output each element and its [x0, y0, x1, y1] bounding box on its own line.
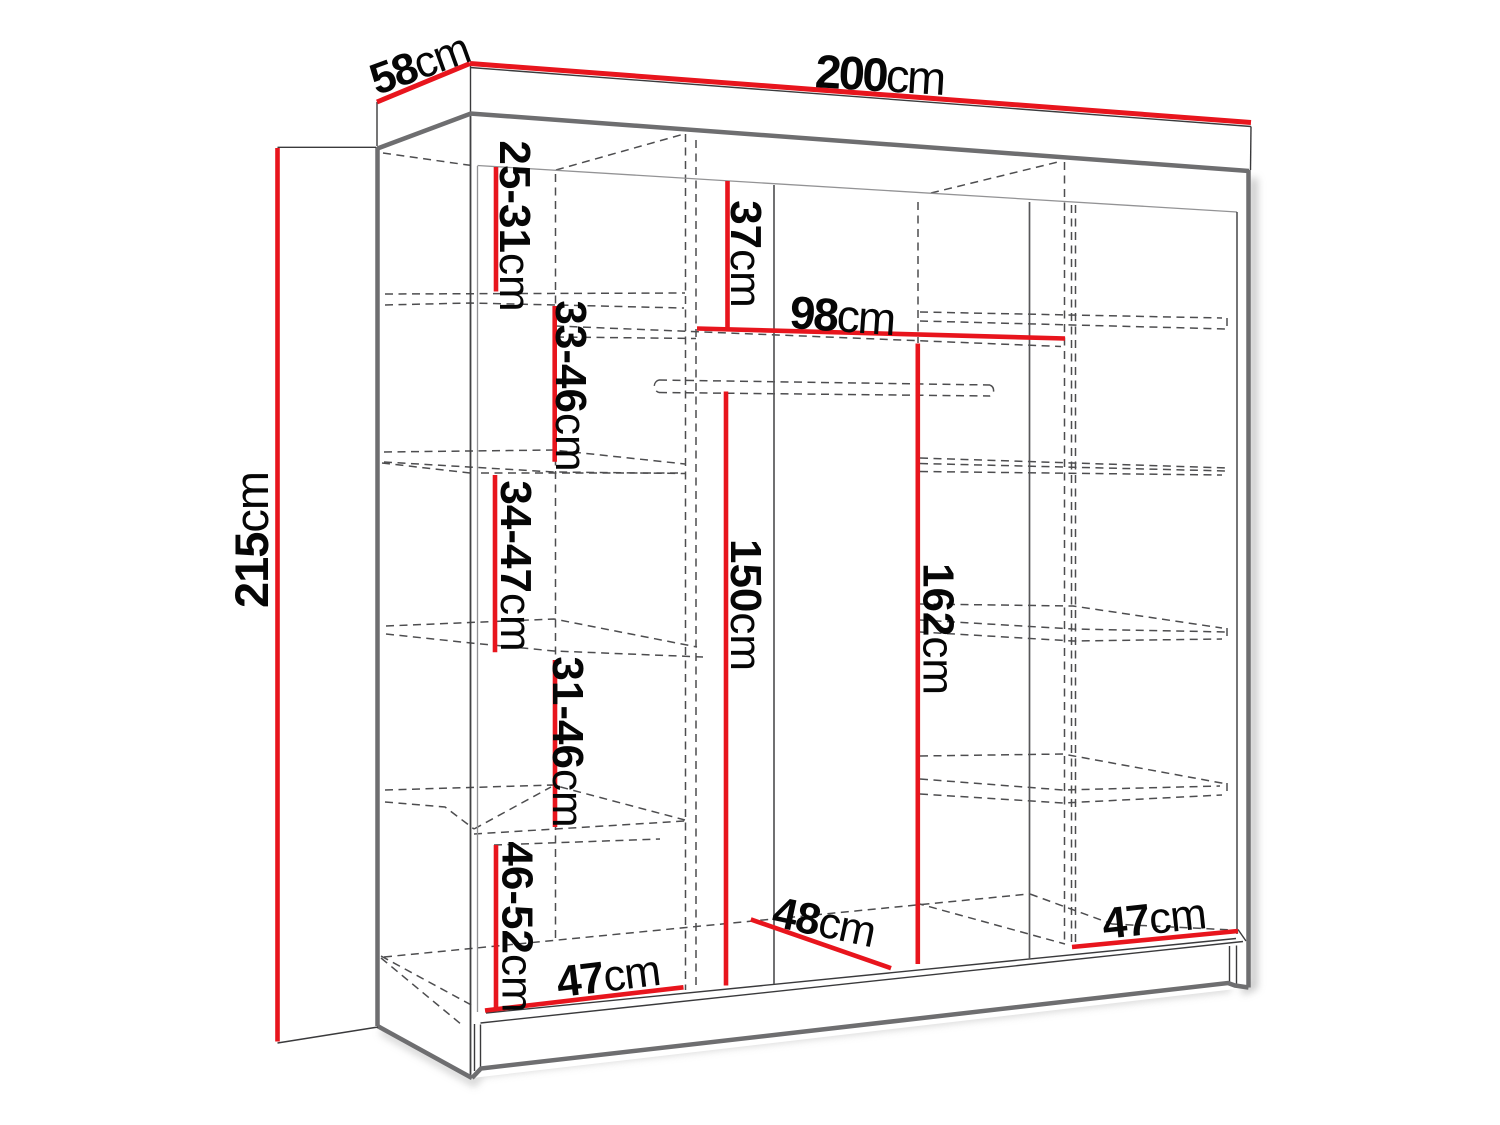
svg-text:98cm: 98cm	[788, 286, 896, 345]
svg-text:150cm: 150cm	[721, 539, 770, 671]
svg-text:162cm: 162cm	[914, 563, 963, 695]
svg-text:46-52cm: 46-52cm	[493, 841, 542, 1012]
svg-text:200cm: 200cm	[814, 44, 946, 105]
svg-text:34-47cm: 34-47cm	[491, 480, 540, 651]
svg-text:37cm: 37cm	[721, 200, 770, 308]
svg-text:25-31cm: 25-31cm	[490, 140, 539, 311]
svg-text:31-46cm: 31-46cm	[543, 656, 592, 827]
svg-text:215cm: 215cm	[225, 472, 278, 608]
svg-text:33-46cm: 33-46cm	[546, 300, 595, 471]
